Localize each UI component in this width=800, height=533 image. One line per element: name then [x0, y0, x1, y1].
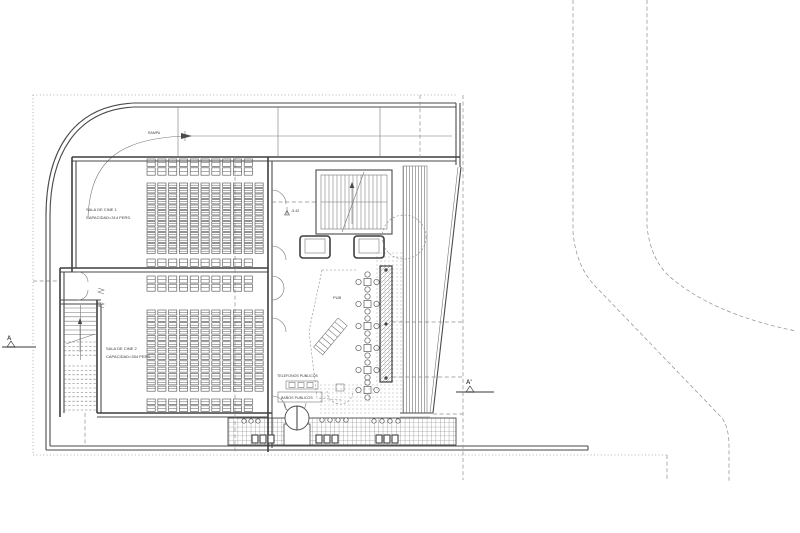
floor-plan-svg: RAMPA — [0, 0, 800, 533]
cinema-hall-2-seats — [147, 276, 263, 411]
hall-labels: SALA DE CINE 1 CAPACIDAD=314 PERS. SALA … — [86, 207, 151, 359]
pub-table — [364, 345, 371, 352]
hall1-name: SALA DE CINE 1 — [86, 207, 117, 212]
ramp: RAMPA — [88, 131, 452, 218]
section-a-prime-label: A' — [466, 380, 472, 386]
pub-chair — [365, 309, 370, 314]
pub-chair — [365, 294, 370, 299]
pub-chair — [365, 316, 370, 321]
pub-label: PUB — [333, 295, 342, 300]
pub-stair — [314, 318, 348, 355]
pub-table — [364, 301, 371, 308]
pub-chair — [365, 375, 370, 380]
pub-chair — [356, 367, 361, 372]
hall2-name: SALA DE CINE 2 — [106, 346, 137, 351]
pub-chair — [365, 331, 370, 336]
left-staircase — [64, 305, 97, 410]
pub-chair — [365, 338, 370, 343]
pub-table — [364, 323, 371, 330]
pub-chair — [356, 323, 361, 328]
ramp-label: RAMPA — [148, 131, 161, 135]
section-marker-a: A — [2, 336, 36, 347]
pub-chair — [365, 287, 370, 292]
phone-counter: TELEFONOS PUBLICOS — [277, 374, 319, 389]
cinema-hall-1-seats — [147, 159, 263, 266]
pub-chair — [365, 353, 370, 358]
pub-table — [364, 367, 371, 374]
section-marker-a-prime: A' — [456, 380, 494, 392]
hall2-capacity: CAPACIDAD=354 PERS. — [106, 354, 151, 359]
pub-chair — [356, 279, 361, 284]
pub-chair — [365, 360, 370, 365]
pub-chair — [356, 345, 361, 350]
restrooms-label: BAÑOS PUBLICOS — [281, 395, 313, 400]
access-roads — [573, 0, 796, 482]
revolving-door — [284, 406, 310, 445]
level-marker-label: -5.42 — [291, 209, 299, 213]
pub-area: PUB — [309, 270, 358, 400]
pub-chair — [365, 272, 370, 277]
pub-chair — [356, 301, 361, 306]
hall1-capacity: CAPACIDAD=314 PERS. — [86, 215, 131, 220]
terrace-steps — [403, 166, 427, 413]
level-marker: -5.42 — [285, 207, 300, 215]
phones-label: TELEFONOS PUBLICOS — [277, 374, 319, 378]
main-staircase — [316, 170, 392, 234]
section-a-label: A — [7, 336, 12, 342]
pub-table — [364, 279, 371, 286]
bar-counter — [380, 266, 392, 382]
